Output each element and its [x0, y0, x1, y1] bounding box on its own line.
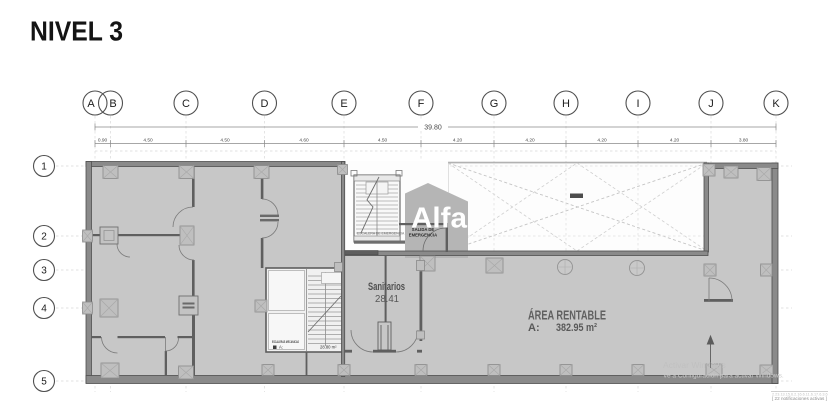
svg-text:[ 22 notificaciones activas ]: [ 22 notificaciones activas ] — [772, 396, 827, 401]
svg-text:4: 4 — [41, 304, 47, 315]
svg-text:A:: A: — [528, 322, 540, 334]
svg-text:4.20: 4.20 — [597, 138, 607, 144]
svg-text:4.60: 4.60 — [299, 138, 309, 144]
svg-text:E: E — [340, 98, 347, 110]
svg-text:A:: A: — [279, 345, 283, 350]
svg-text:3.80: 3.80 — [739, 138, 749, 144]
svg-text:4.50: 4.50 — [143, 138, 153, 144]
svg-text:H: H — [562, 98, 570, 110]
svg-text:4.50: 4.50 — [378, 138, 388, 144]
svg-text:K: K — [772, 98, 780, 110]
svg-text:28.80 m²: 28.80 m² — [320, 345, 337, 350]
svg-text:G: G — [490, 98, 499, 110]
svg-text:0.90: 0.90 — [98, 138, 108, 144]
svg-text:3: 3 — [41, 266, 47, 277]
svg-text:1: 1 — [41, 162, 47, 173]
svg-text:28.41: 28.41 — [375, 294, 399, 305]
svg-text:4.20: 4.20 — [525, 138, 535, 144]
svg-text:NIVEL 3: NIVEL 3 — [30, 16, 123, 47]
svg-text:ESCALERA DE EMERGENCIA: ESCALERA DE EMERGENCIA — [357, 232, 405, 236]
svg-text:382.95 m²: 382.95 m² — [556, 322, 597, 334]
svg-text:SALIDA DE: SALIDA DE — [412, 227, 435, 232]
svg-text:4.50: 4.50 — [220, 138, 230, 144]
svg-text:C: C — [182, 98, 190, 110]
svg-text:Activar Windows: Activar Windows — [663, 360, 726, 370]
svg-text:ÁREA RENTABLE: ÁREA RENTABLE — [528, 308, 606, 323]
svg-text:2: 2 — [41, 232, 47, 243]
svg-text:B: B — [109, 98, 116, 110]
svg-text:ESCALERAS MECANICAS: ESCALERAS MECANICAS — [272, 340, 299, 344]
svg-text:5: 5 — [41, 377, 47, 388]
svg-text:D: D — [261, 98, 269, 110]
svg-text:J: J — [708, 98, 714, 110]
svg-text:4.20: 4.20 — [453, 138, 463, 144]
svg-text:4.20: 4.20 — [670, 138, 680, 144]
svg-text:A: A — [87, 98, 95, 110]
svg-text:Sanitarios: Sanitarios — [368, 281, 405, 293]
svg-text:EMERGENCIA: EMERGENCIA — [409, 233, 437, 238]
svg-text:Ve a Configuración para activa: Ve a Configuración para activar Windows. — [663, 373, 784, 380]
svg-text:F: F — [418, 98, 425, 110]
svg-text:39.80: 39.80 — [424, 125, 442, 132]
svg-text:I: I — [636, 98, 639, 110]
